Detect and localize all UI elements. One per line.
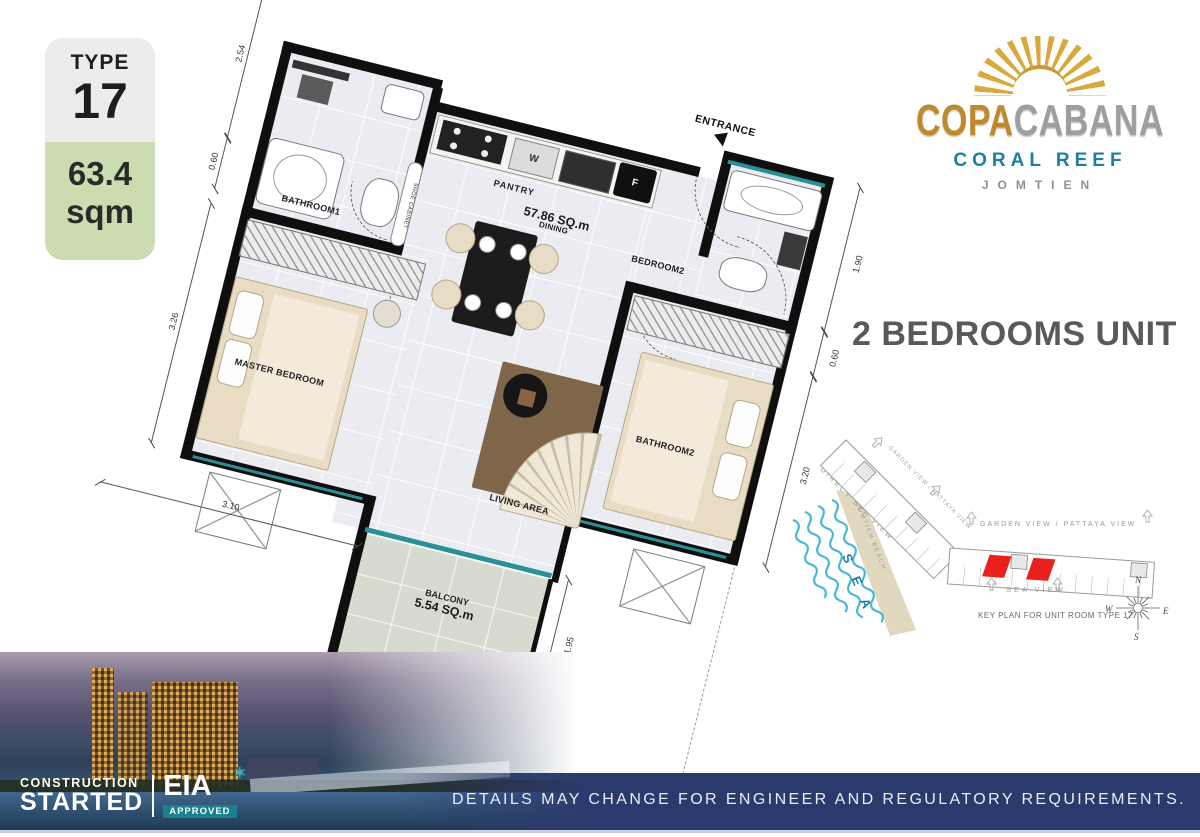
compass-n: N [1134,575,1142,585]
star-icon: ✶ [233,766,246,782]
sunburst-icon [974,36,1106,96]
photo-fade-white [330,652,640,773]
compass-s: S [1134,632,1139,642]
brand-subtitle: CORAL REEF [928,150,1152,172]
type-badge: TYPE 17 63.4 sqm [45,38,155,260]
dimension: 0.60 [812,332,824,377]
washer-label: W [528,152,540,165]
garden-view-label: GARDEN VIEW / PATTAYA VIEW [980,521,1136,528]
disclaimer-text: DETAILS MAY CHANGE FOR ENGINEER AND REGU… [452,773,1186,827]
fridge-label: F [631,177,640,189]
unit-title: 2 BEDROOMS UNIT [852,315,1177,354]
started-label: STARTED [20,790,143,815]
type-badge-bottom: 63.4 sqm [45,142,155,260]
key-plan: S E A JOMTIEN BEACH DIRECT SEA VIEW GARD… [790,430,1190,650]
dimension: 2.54 [227,0,269,138]
area-value: 63.4 [45,142,155,193]
area-unit: sqm [45,193,155,231]
construction-status: CONSTRUCTION STARTED EIA✶ APPROVED [20,772,237,819]
type-number: 17 [45,75,155,128]
eia-label: EIA✶ [163,772,236,801]
type-label: TYPE [45,38,155,75]
brand-location: JOMTIEN [928,178,1152,192]
ac-ledge [619,548,705,624]
brand-silver: CABANA [1014,99,1164,143]
brand-gold: COPA [916,99,1014,143]
sea-view-label: SEA VIEW [1006,585,1066,594]
dimension: 0.60 [214,138,228,189]
brand-logo: COPACABANA CORAL REEF JOMTIEN [928,36,1152,192]
type-badge-top: TYPE 17 [45,38,155,142]
tower [92,668,114,788]
dimension: 1.90 [824,188,861,332]
entrance-arrow-icon [714,133,730,148]
divider [152,775,154,817]
compass-e: E [1162,606,1169,616]
brand-wordmark: COPACABANA [928,99,1152,143]
approved-badge: APPROVED [163,805,236,818]
